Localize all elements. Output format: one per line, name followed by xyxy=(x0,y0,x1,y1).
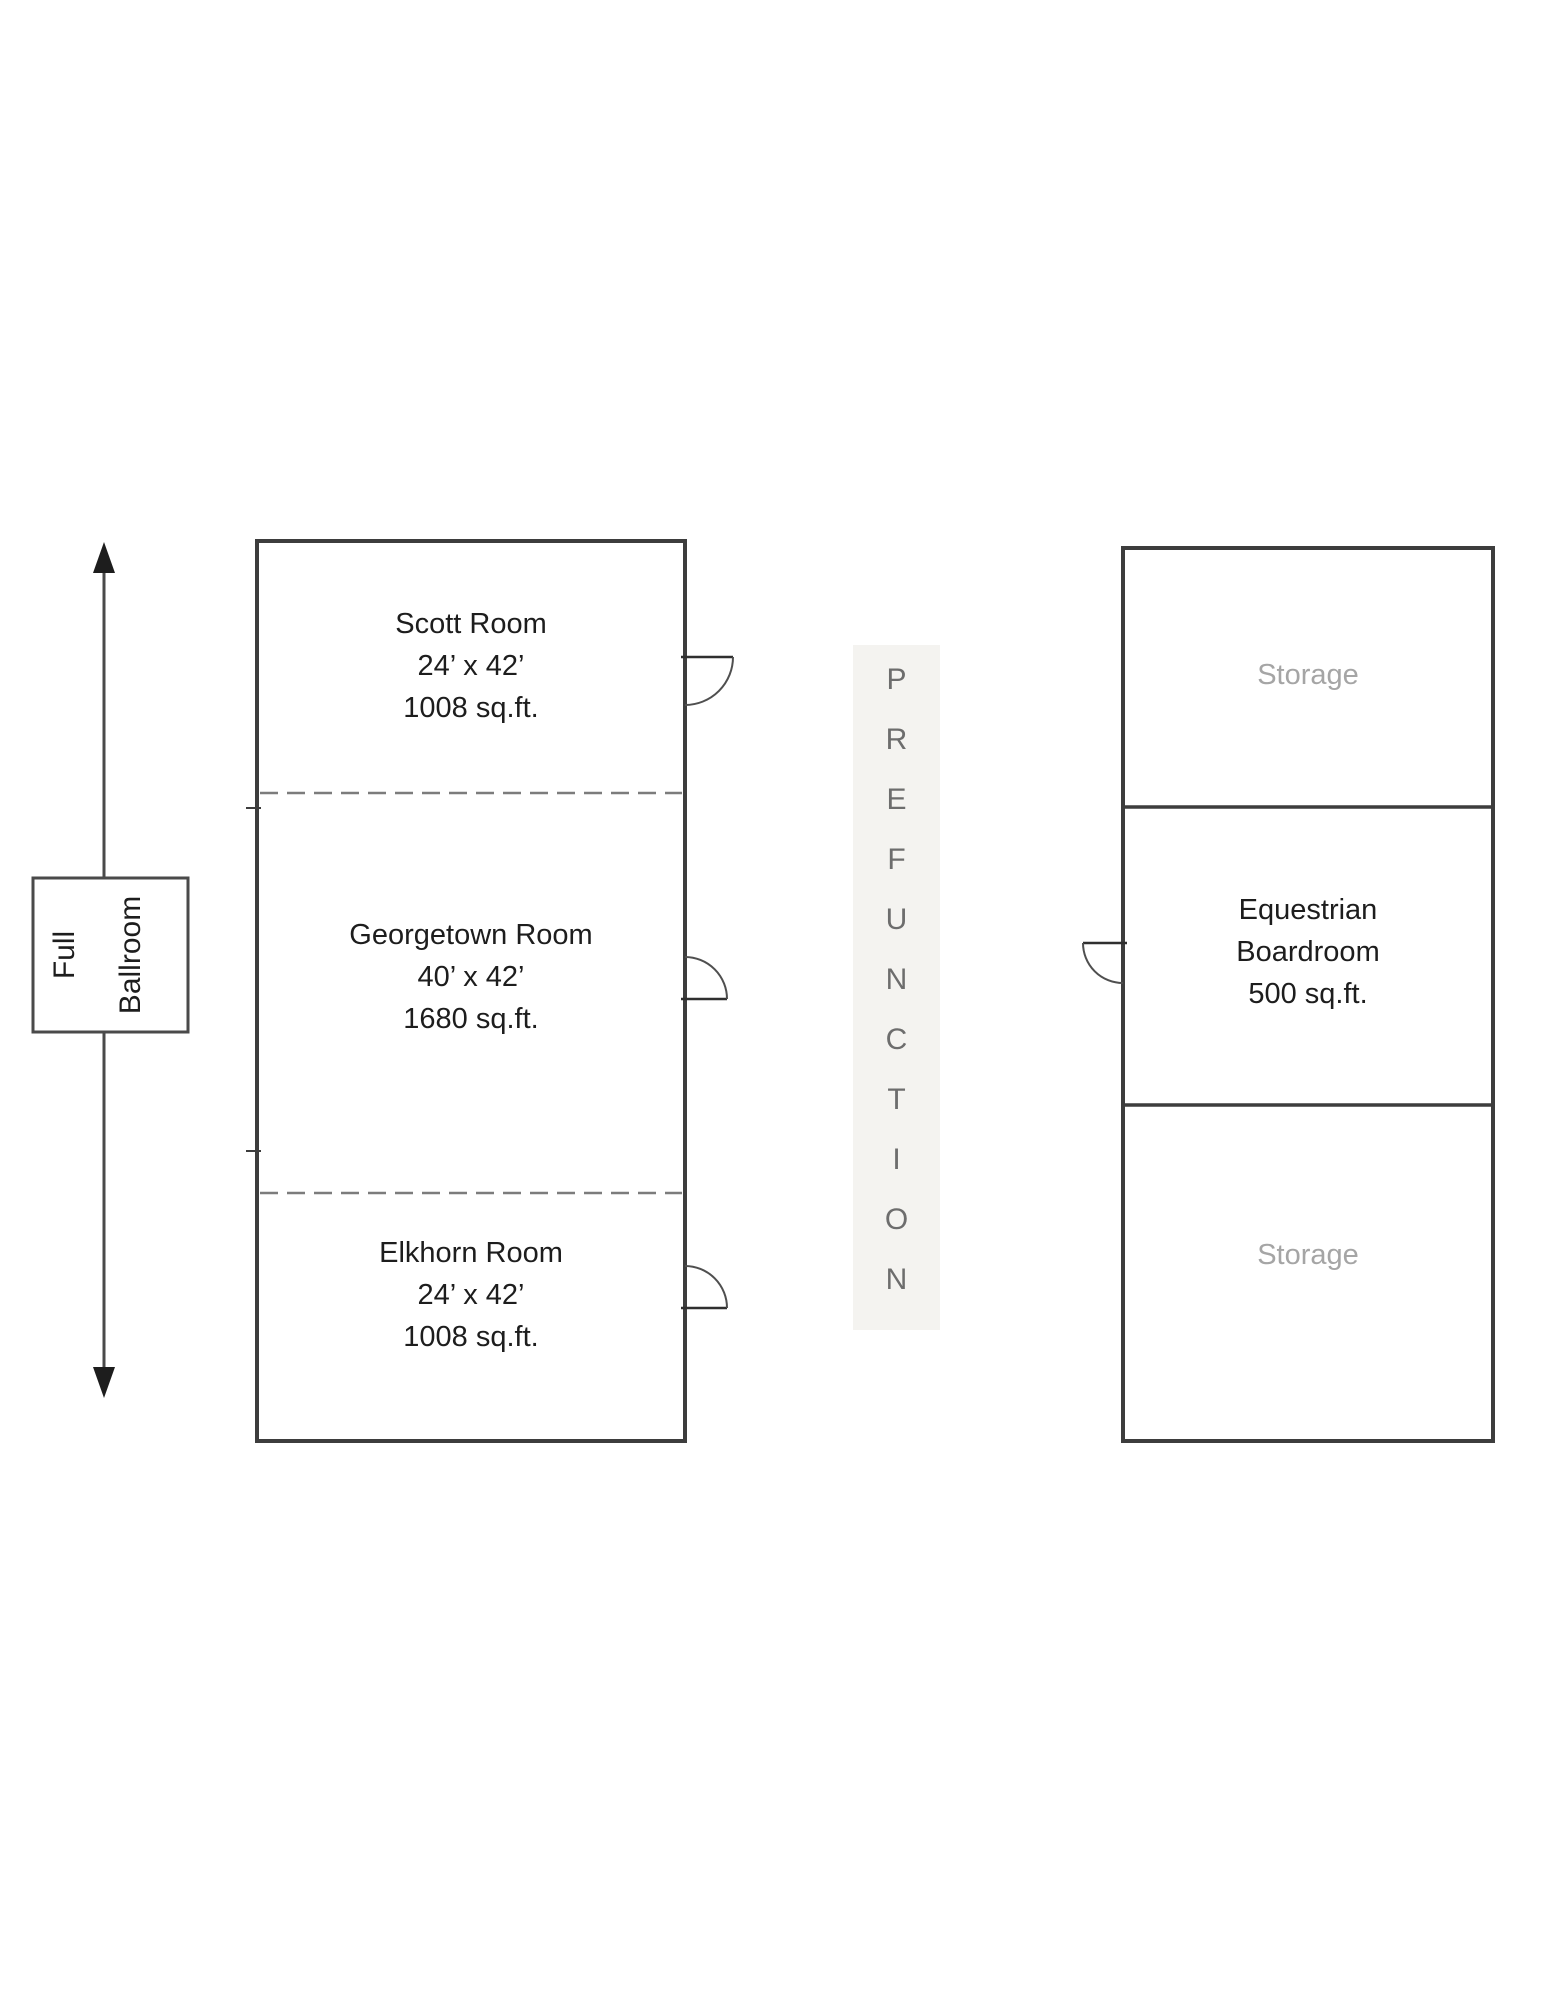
full-ballroom-label-line2: Ballroom xyxy=(99,896,165,1014)
boardroom-door-swing xyxy=(1083,943,1123,983)
room-area: 500 sq.ft. xyxy=(1125,973,1491,1015)
georgetown-room-label: Georgetown Room 40’ x 42’ 1680 sq.ft. xyxy=(259,914,683,1040)
room-area: 1680 sq.ft. xyxy=(259,998,683,1040)
scott-room-label: Scott Room 24’ x 42’ 1008 sq.ft. xyxy=(259,603,683,729)
floor-plan-page: Full Ballroom Scott Room 24’ x 42’ 1008 … xyxy=(0,0,1545,2000)
room-name: Elkhorn Room xyxy=(259,1232,683,1274)
room-name: Georgetown Room xyxy=(259,914,683,956)
room-name-line2: Boardroom xyxy=(1125,931,1491,973)
room-area: 1008 sq.ft. xyxy=(259,1316,683,1358)
room-name-line1: Equestrian xyxy=(1125,889,1491,931)
equestrian-boardroom-label: Equestrian Boardroom 500 sq.ft. xyxy=(1125,889,1491,1015)
room-dimensions: 24’ x 42’ xyxy=(259,1274,683,1316)
arrow-up-icon xyxy=(93,542,115,573)
room-name: Scott Room xyxy=(259,603,683,645)
room-dimensions: 24’ x 42’ xyxy=(259,645,683,687)
full-ballroom-label: Full Ballroom xyxy=(21,878,176,1032)
full-ballroom-label-line1: Full xyxy=(33,896,99,1014)
georgetown-room-door-swing xyxy=(685,957,727,999)
scott-room-door-swing xyxy=(685,657,733,705)
storage-bottom-label: Storage xyxy=(1125,1234,1491,1276)
elkhorn-room-label: Elkhorn Room 24’ x 42’ 1008 sq.ft. xyxy=(259,1232,683,1358)
prefunction-label: PREFUNCTION xyxy=(853,650,940,1310)
room-dimensions: 40’ x 42’ xyxy=(259,956,683,998)
storage-top-label: Storage xyxy=(1125,654,1491,696)
arrow-down-icon xyxy=(93,1367,115,1398)
room-area: 1008 sq.ft. xyxy=(259,687,683,729)
elkhorn-room-door-swing xyxy=(685,1266,727,1308)
